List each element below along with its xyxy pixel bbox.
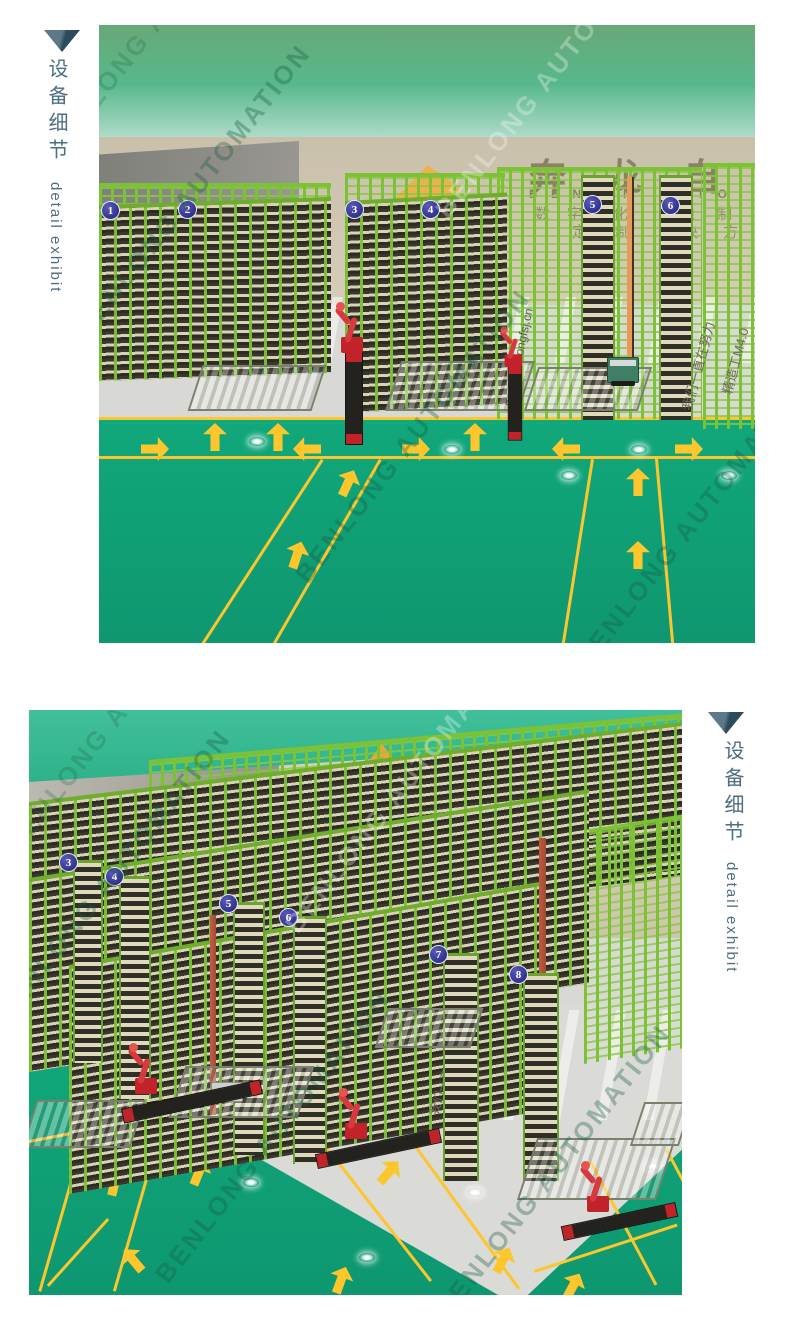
floor-light — [561, 471, 577, 480]
agv-rail — [345, 351, 363, 445]
stacker-crane-base — [607, 357, 639, 383]
ceiling — [99, 25, 755, 143]
floor-light — [631, 445, 647, 454]
rack — [99, 197, 331, 381]
conveyor-table — [188, 365, 327, 411]
agv-rail — [508, 365, 522, 440]
warehouse-render-bottom: 奔 龙 自 A 3 4 5 6 7 8 — [29, 710, 682, 1295]
page: 设备细节 detail exhibit 奔 龙 自 B E N N U T O … — [0, 0, 790, 1318]
rack-badge-7: 7 — [429, 945, 448, 964]
rack-badge-8: 8 — [509, 965, 528, 984]
rack-badge-1: 1 — [101, 201, 120, 220]
triangle-icon — [708, 712, 744, 734]
robot-joint — [581, 1161, 590, 1170]
rack-badge-2: 2 — [178, 200, 197, 219]
robot-joint — [129, 1043, 138, 1052]
rack-tower — [73, 860, 103, 1063]
rack-tower — [443, 953, 479, 1181]
rack-badge-5: 5 — [219, 894, 238, 913]
floor-light — [243, 1178, 259, 1187]
robot-joint — [339, 1088, 348, 1097]
rack-badge-4: 4 — [105, 867, 124, 886]
rack-badge-6: 6 — [279, 908, 298, 927]
rack-badge-3: 3 — [345, 200, 364, 219]
robot-joint — [501, 326, 508, 333]
rack-badge-6: 6 — [661, 196, 680, 215]
floor-light — [721, 471, 737, 480]
floor-light — [359, 1253, 375, 1262]
floor-light — [444, 445, 460, 454]
rack-badge-4: 4 — [421, 200, 440, 219]
floor-light — [467, 1188, 483, 1197]
section-title-en: detail exhibit — [723, 862, 740, 1057]
rack-tower — [293, 916, 327, 1164]
section-title-en: detail exhibit — [47, 182, 64, 377]
stacker-mast — [627, 177, 634, 367]
robot-joint — [336, 302, 345, 311]
rack — [584, 814, 682, 1064]
section-title-zh: 设备细节 — [718, 740, 747, 870]
floor-light — [249, 437, 265, 446]
rack-badge-5: 5 — [583, 195, 602, 214]
conveyor-table — [375, 1008, 484, 1048]
triangle-icon — [44, 30, 80, 52]
section-title-zh: 设备细节 — [42, 58, 71, 188]
warehouse-render-top: 奔 龙 自 B E N N U T O 数 字 化 能 制 定 制 决 方 1 … — [99, 25, 755, 643]
rack-badge-3: 3 — [59, 853, 78, 872]
